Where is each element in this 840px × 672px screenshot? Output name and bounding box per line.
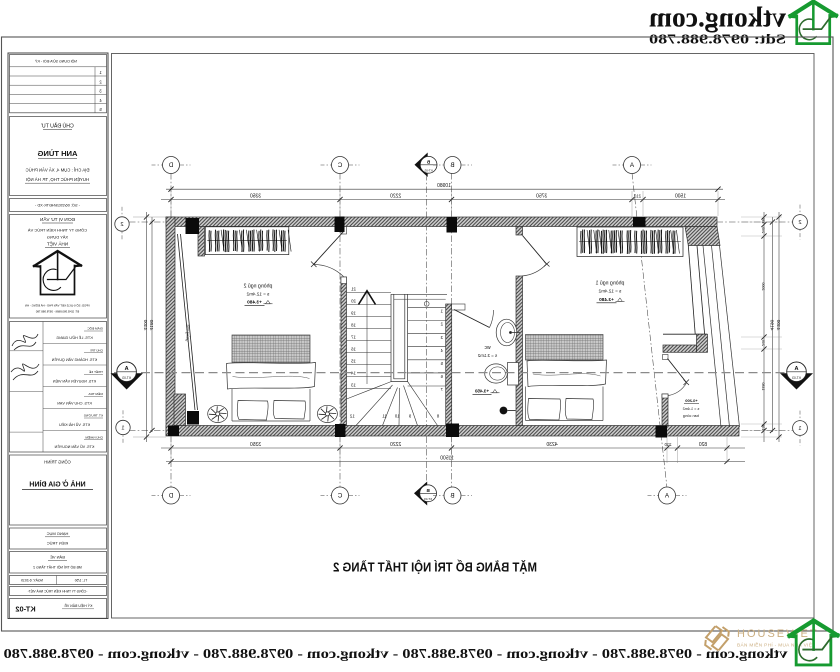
svg-text:GIÁM ĐỐC: GIÁM ĐỐC	[87, 326, 103, 331]
svg-text:1: 1	[99, 70, 102, 75]
svg-text:3350: 3350	[250, 193, 261, 199]
svg-text:240: 240	[761, 340, 765, 346]
svg-text:2220: 2220	[390, 193, 401, 199]
svg-text:2: 2	[120, 222, 123, 228]
svg-text:NHÀ Ở GIA ĐÌNH: NHÀ Ở GIA ĐÌNH	[29, 480, 85, 489]
svg-text:9: 9	[408, 414, 411, 419]
svg-text:5: 5	[99, 107, 102, 112]
svg-text:KIỂM TRA: KIỂM TRA	[88, 391, 103, 396]
svg-text:CÔNG TY TNHH KIẾN TRÚC VÀ: CÔNG TY TNHH KIẾN TRÚC VÀ	[28, 228, 88, 233]
svg-text:Sdt: 0978.988.780: Sdt: 0978.988.780	[649, 32, 786, 47]
svg-text:20: 20	[351, 298, 356, 303]
svg-text:NGÀY: 6-2019: NGÀY: 6-2019	[21, 579, 43, 583]
svg-text:KT-03: KT-03	[424, 497, 432, 501]
svg-text:A: A	[629, 162, 634, 169]
svg-text:10: 10	[394, 414, 399, 419]
svg-text:4400: 4400	[775, 319, 781, 330]
svg-text:NHÀ VIỆT: NHÀ VIỆT	[47, 240, 68, 247]
svg-text:s = 12.4m2: s = 12.4m2	[598, 289, 621, 294]
svg-text:+3.450: +3.450	[474, 389, 489, 394]
svg-text:KT. TRƯỞNG: KT. TRƯỞNG	[83, 413, 103, 418]
svg-text:KIẾN TRÚC: KIẾN TRÚC	[47, 541, 69, 546]
svg-text:KT-03: KT-03	[424, 169, 432, 173]
svg-text:3: 3	[440, 335, 443, 340]
svg-text:240: 240	[761, 227, 765, 233]
svg-text:KÝ HIỆU BẢN VẼ:: KÝ HIỆU BẢN VẼ:	[64, 603, 93, 608]
svg-text:2220: 2220	[390, 442, 401, 448]
svg-text:2000: 2000	[761, 283, 765, 291]
svg-text:+3.480: +3.480	[247, 300, 262, 306]
svg-text:CHỦ TRÌ: CHỦ TRÌ	[90, 347, 103, 352]
svg-text:KTS. VŨ VĂN NGUYÊN: KTS. VŨ VĂN NGUYÊN	[54, 444, 94, 449]
svg-text:C: C	[337, 493, 342, 500]
svg-text:16: 16	[351, 346, 356, 351]
svg-text:- SỐ: 06/2019/HĐTK-XD -: - SỐ: 06/2019/HĐTK-XD -	[34, 203, 80, 208]
svg-text:1480: 1480	[761, 383, 765, 391]
svg-text:s = 1.4m2: s = 1.4m2	[683, 407, 700, 411]
svg-text:2: 2	[440, 322, 443, 327]
svg-text:18: 18	[351, 322, 356, 327]
svg-text:NỘI DUNG SỬA ĐỔI - KÝ: NỘI DUNG SỬA ĐỔI - KÝ	[34, 59, 77, 64]
svg-text:ĐT: 0243.990.8686 - 0978.988.7: ĐT: 0243.990.8686 - 0978.988.780	[35, 310, 79, 314]
svg-text:wc: wc	[484, 345, 491, 351]
svg-text:4400: 4400	[142, 319, 148, 330]
svg-text:s = 3.1m2: s = 3.1m2	[477, 353, 497, 358]
svg-text:TL: 1/50: TL: 1/50	[75, 579, 88, 583]
svg-text:KT-03: KT-03	[122, 376, 131, 380]
svg-text:2: 2	[99, 79, 102, 84]
svg-text:KTS. CHU VĂN VẠN: KTS. CHU VĂN VẠN	[57, 401, 92, 405]
svg-text:KT-03: KT-03	[792, 376, 801, 380]
svg-text:XÂY DỰNG: XÂY DỰNG	[47, 235, 68, 240]
svg-text:KT-02: KT-02	[15, 605, 35, 614]
svg-text:1500: 1500	[675, 193, 686, 199]
svg-text:1: 1	[798, 426, 801, 432]
svg-text:THIẾT KẾ: THIẾT KẾ	[89, 369, 103, 374]
svg-text:KTS. LÊ HỮU GIANG: KTS. LÊ HỮU GIANG	[56, 335, 92, 340]
svg-text:130: 130	[761, 218, 765, 224]
svg-text:phòng ngủ 2: phòng ngủ 2	[243, 283, 272, 290]
svg-text:CHỦ NHIỆM: CHỦ NHIỆM	[85, 434, 103, 439]
svg-text:phòng ngủ 1: phòng ngủ 1	[595, 280, 624, 287]
svg-text:11500: 11500	[440, 455, 454, 461]
svg-text:MẶT BẰNG BỐ TRÍ NỘI THẤT TẦNG: MẶT BẰNG BỐ TRÍ NỘI THẤT TẦNG 2	[333, 560, 537, 575]
svg-text:KTS. NGUYỄN VĂN VIỆN: KTS. NGUYỄN VĂN VIỆN	[53, 379, 97, 384]
svg-text:1: 1	[121, 426, 124, 432]
svg-text:MB BỐ TRÍ NỘI THẤT TẦNG 2: MB BỐ TRÍ NỘI THẤT TẦNG 2	[33, 565, 82, 570]
svg-text:A: A	[794, 366, 798, 372]
svg-text:ĐỊA CHỈ : CỤM 4, XÃ VÂN PHÚC: ĐỊA CHỈ : CỤM 4, XÃ VÂN PHÚC	[26, 168, 90, 173]
svg-text:17: 17	[351, 334, 356, 339]
svg-text:3750: 3750	[536, 193, 547, 199]
svg-text:giếng trời: giếng trời	[186, 324, 191, 341]
svg-text:6: 6	[440, 374, 443, 379]
svg-text:4190: 4190	[768, 319, 774, 330]
svg-text:ban công: ban công	[683, 414, 699, 418]
svg-text:210: 210	[664, 442, 672, 447]
svg-text:+3.480: +3.480	[599, 297, 614, 303]
svg-text:B: B	[450, 162, 454, 169]
svg-text:HUYỆN PHÚC THỌ, TP. HÀ NỘI: HUYỆN PHÚC THỌ, TP. HÀ NỘI	[26, 177, 89, 182]
svg-text:KTS. HOÀNG VĂN QUYÊN: KTS. HOÀNG VĂN QUYÊN	[51, 357, 97, 362]
svg-text:+3.200: +3.200	[685, 398, 698, 403]
svg-text:11: 11	[382, 414, 387, 419]
svg-text:HOUSEVIET: HOUSEVIET	[737, 628, 819, 640]
svg-text:CÔNG TRÌNH: CÔNG TRÌNH	[44, 460, 70, 465]
svg-text:B: B	[450, 493, 454, 500]
svg-text:4230: 4230	[546, 442, 557, 448]
svg-text:210: 210	[633, 193, 641, 198]
svg-text:KTS. VŨ HẢI KIỀU: KTS. VŨ HẢI KIỀU	[59, 422, 90, 427]
svg-text:10980: 10980	[437, 183, 451, 189]
svg-text:12: 12	[349, 414, 354, 419]
svg-text:VPGD: SỐ 6-LK13 KĐT VĂN PHÚ -: VPGD: SỐ 6-LK13 KĐT VĂN PHÚ - HÀ ĐÔNG - …	[25, 303, 90, 308]
svg-text:2: 2	[798, 220, 801, 226]
svg-text:820: 820	[699, 442, 708, 448]
svg-text:3350: 3350	[250, 442, 261, 448]
svg-text:21: 21	[351, 286, 356, 291]
svg-text:A: A	[125, 366, 129, 372]
svg-text:5: 5	[440, 361, 443, 366]
svg-text:D: D	[168, 493, 173, 500]
svg-text:vtkong.com - 0978.988.780 - vt: vtkong.com - 0978.988.780 - vtkong.com -…	[4, 647, 788, 662]
svg-text:13: 13	[351, 382, 356, 387]
svg-text:s = 12.4m2: s = 12.4m2	[246, 292, 269, 297]
svg-text:4: 4	[440, 348, 443, 353]
svg-text:HẠNG MỤC: HẠNG MỤC	[47, 531, 69, 536]
svg-text:CHỦ ĐẦU TƯ: CHỦ ĐẦU TƯ	[41, 123, 74, 130]
svg-text:19: 19	[351, 310, 356, 315]
svg-text:D: D	[168, 162, 173, 169]
svg-text:C: C	[337, 162, 342, 169]
svg-text:8: 8	[436, 414, 439, 419]
svg-text:BẢN VẼ: BẢN VẼ	[50, 555, 65, 560]
svg-text:ANH TÙNG: ANH TÙNG	[37, 149, 77, 158]
svg-text:15: 15	[351, 358, 356, 363]
svg-text:A: A	[664, 493, 669, 500]
svg-text:7: 7	[440, 387, 443, 392]
svg-text:4180: 4180	[148, 319, 154, 330]
svg-text:ĐƠN VỊ TƯ VẤN: ĐƠN VỊ TƯ VẤN	[40, 216, 75, 222]
svg-text:-CÔNG TY TNHH KIẾN TRÚC NHÀ VI: -CÔNG TY TNHH KIẾN TRÚC NHÀ VIỆT-	[28, 589, 88, 594]
svg-text:vtkong.com: vtkong.com	[649, 3, 786, 34]
svg-text:130: 130	[761, 424, 765, 430]
svg-text:1: 1	[440, 309, 443, 314]
svg-text:4: 4	[99, 98, 102, 103]
svg-text:3: 3	[99, 89, 102, 94]
